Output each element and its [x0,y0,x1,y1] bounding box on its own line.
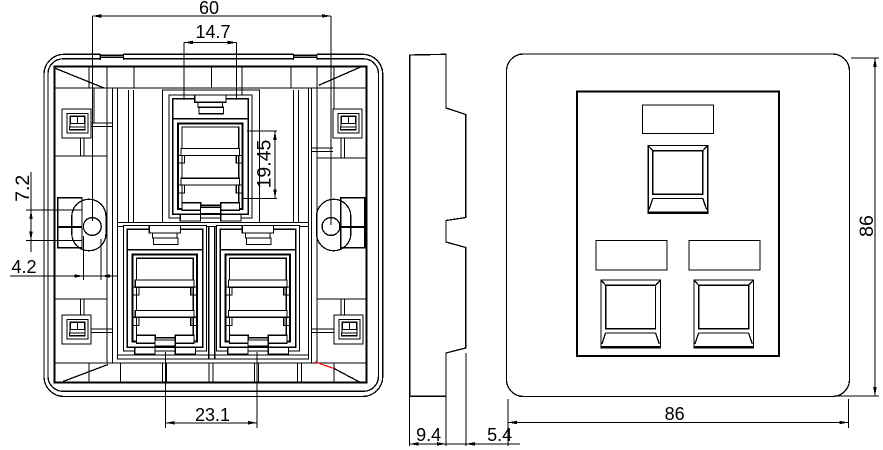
svg-text:60: 60 [199,0,219,18]
svg-text:4.2: 4.2 [11,257,36,277]
svg-text:23.1: 23.1 [195,405,230,425]
svg-text:86: 86 [856,215,878,237]
svg-text:86: 86 [665,404,685,424]
svg-text:14.7: 14.7 [195,22,230,42]
svg-text:19.45: 19.45 [253,139,275,188]
svg-text:7.2: 7.2 [12,175,34,202]
svg-text:9.4: 9.4 [416,425,441,445]
